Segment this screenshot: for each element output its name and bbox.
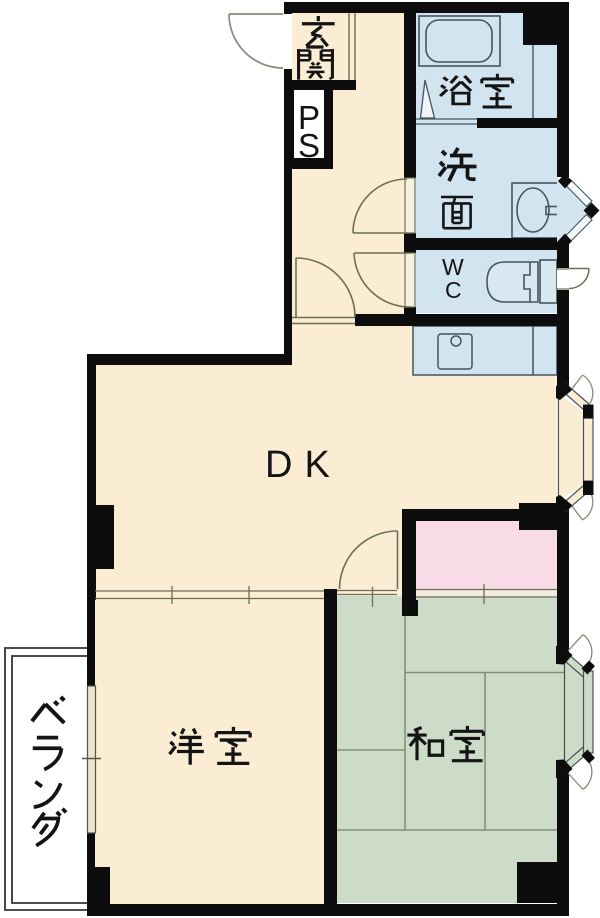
svg-text:S: S [298,127,320,164]
svg-text:C: C [445,277,462,303]
svg-text:DK: DK [265,444,342,486]
